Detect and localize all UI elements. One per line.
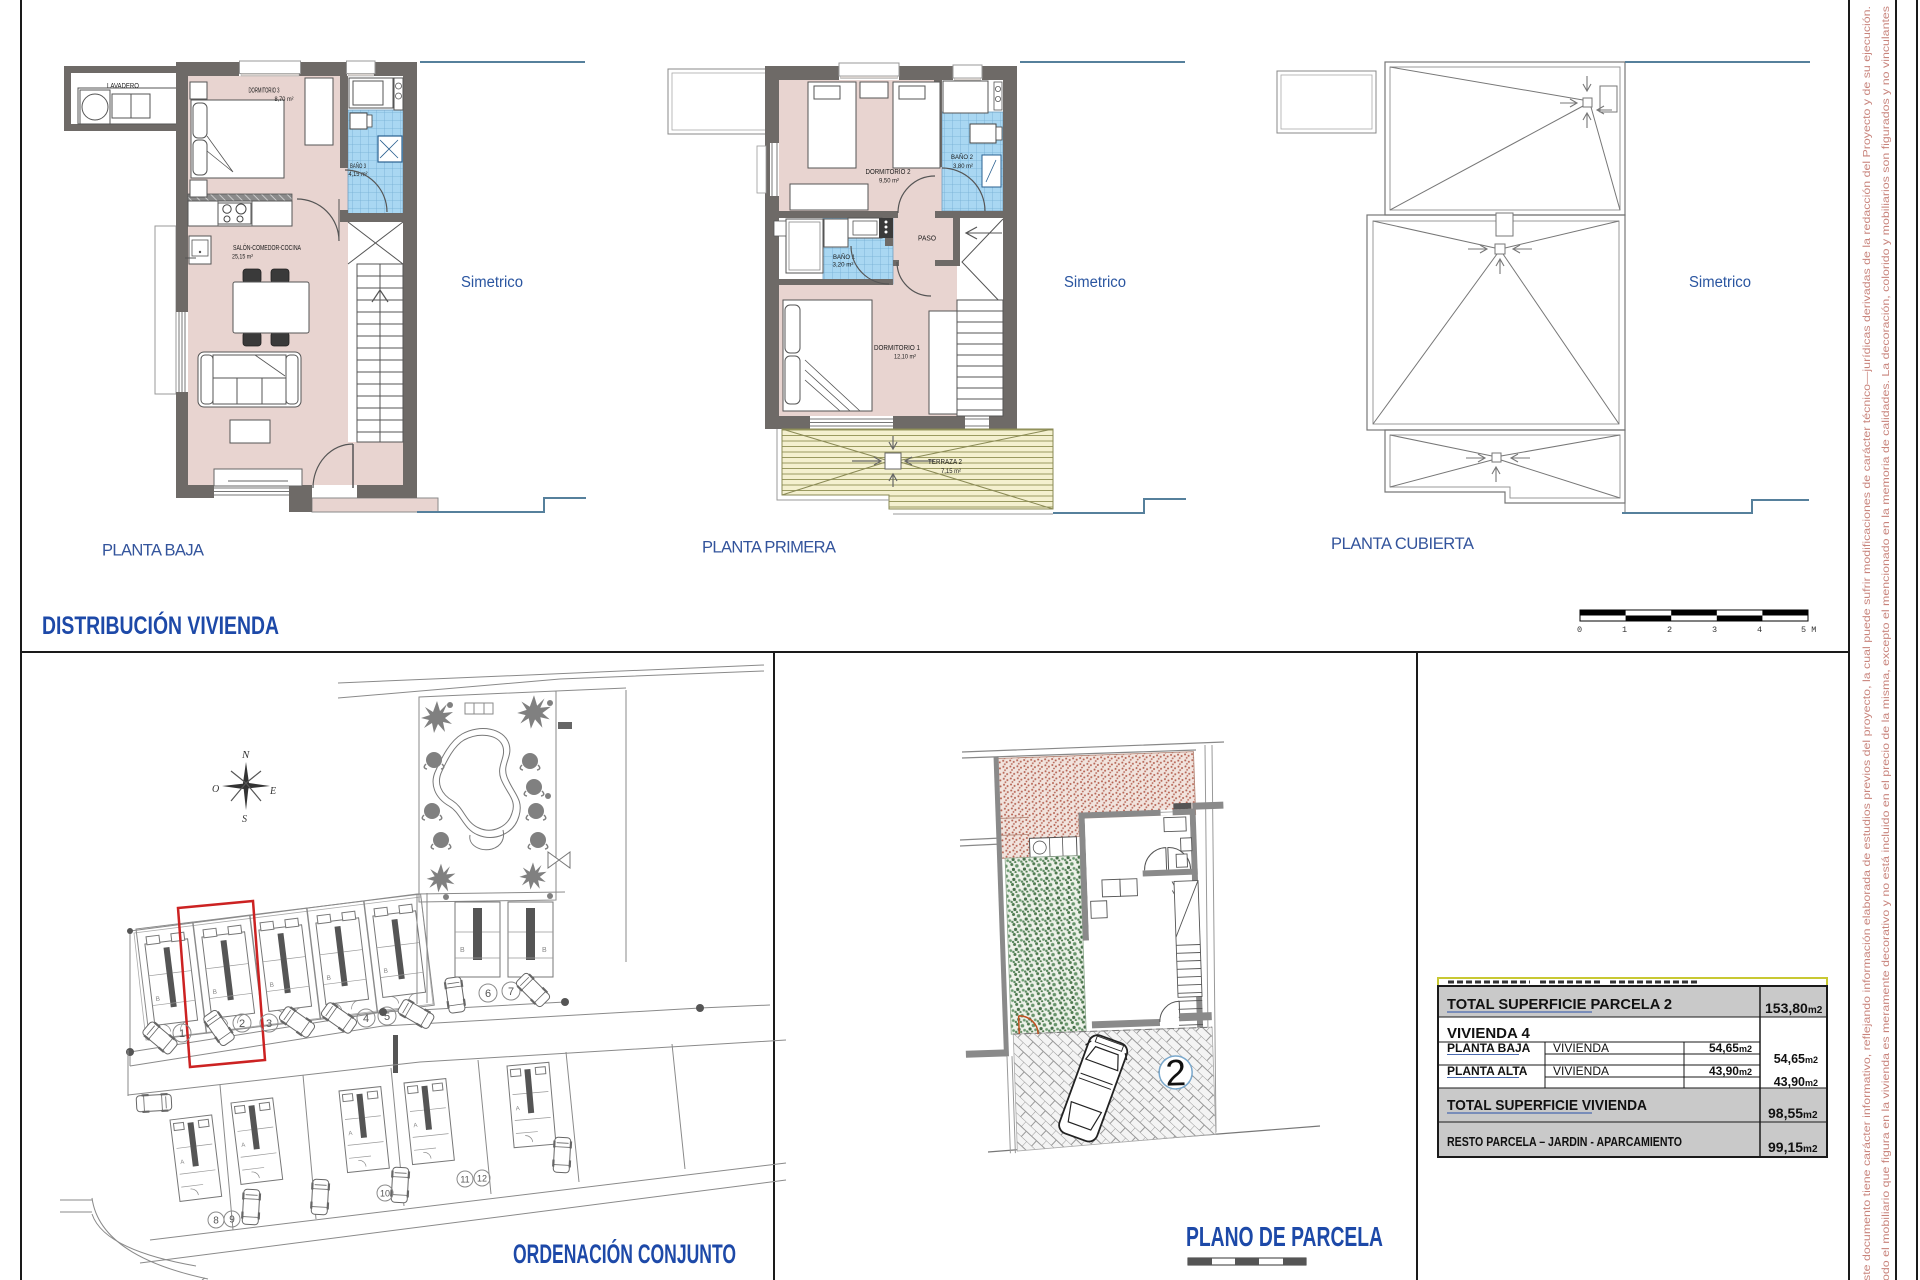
svg-text:9: 9 — [229, 1215, 235, 1226]
svg-text:BAÑO 2: BAÑO 2 — [951, 152, 973, 161]
svg-text:RESTO PARCELA – JARDIN - APARC: RESTO PARCELA – JARDIN - APARCAMIENTO — [1447, 1134, 1682, 1149]
svg-text:PLANO DE PARCELA: PLANO DE PARCELA — [1186, 1221, 1383, 1252]
svg-text:3: 3 — [266, 1018, 272, 1030]
svg-text:Simetrico: Simetrico — [1064, 274, 1126, 291]
svg-text:8,70 m²: 8,70 m² — [275, 96, 295, 103]
svg-text:7,15 m²: 7,15 m² — [941, 468, 962, 475]
svg-text:2: 2 — [1667, 625, 1672, 635]
svg-text:1: 1 — [179, 1028, 185, 1040]
svg-text:BAÑO 3: BAÑO 3 — [350, 161, 366, 170]
svg-text:VIVIENDA: VIVIENDA — [1553, 1041, 1609, 1055]
svg-text:VIVIENDA: VIVIENDA — [1553, 1064, 1609, 1078]
svg-text:DISTRIBUCIÓN VIVIENDA: DISTRIBUCIÓN VIVIENDA — [42, 610, 279, 640]
svg-text:3,80 m²: 3,80 m² — [953, 163, 974, 170]
svg-text:10: 10 — [380, 1189, 390, 1199]
svg-text:TOTAL SUPERFICIE PARCELA 2: TOTAL SUPERFICIE PARCELA 2 — [1447, 996, 1672, 1013]
svg-text:E: E — [269, 786, 276, 797]
svg-text:N: N — [241, 749, 250, 761]
svg-text:7: 7 — [508, 986, 514, 998]
svg-text:B: B — [542, 947, 547, 954]
svg-text:ORDENACIÓN CONJUNTO: ORDENACIÓN CONJUNTO — [513, 1238, 736, 1269]
svg-text:25,15 m²: 25,15 m² — [232, 254, 254, 261]
svg-text:S: S — [242, 814, 247, 825]
svg-text:SALÓN-COMEDOR-COCINA: SALÓN-COMEDOR-COCINA — [233, 243, 301, 252]
svg-text:43,90m2: 43,90m2 — [1709, 1064, 1752, 1078]
svg-text:54,65m2: 54,65m2 — [1774, 1052, 1818, 1066]
svg-text:Simetrico: Simetrico — [461, 274, 523, 291]
svg-text:TERRAZA 2: TERRAZA 2 — [928, 459, 962, 466]
svg-text:B: B — [460, 947, 465, 954]
svg-text:54,65m2: 54,65m2 — [1709, 1041, 1752, 1055]
svg-text:PLANTA PRIMERA: PLANTA PRIMERA — [702, 539, 836, 557]
svg-text:LAVADERO: LAVADERO — [107, 83, 139, 90]
svg-text:11: 11 — [460, 1175, 469, 1185]
svg-text:3: 3 — [1712, 625, 1717, 635]
svg-text:4: 4 — [1757, 625, 1762, 635]
svg-text:9,50 m²: 9,50 m² — [879, 178, 900, 185]
svg-text:2: 2 — [1165, 1052, 1187, 1094]
svg-text:PLANTA BAJA: PLANTA BAJA — [1447, 1041, 1531, 1055]
svg-text:Simetrico: Simetrico — [1689, 274, 1751, 291]
svg-text:PASO: PASO — [918, 236, 937, 243]
svg-text:VIVIENDA 4: VIVIENDA 4 — [1447, 1025, 1530, 1042]
svg-text:12,10 m²: 12,10 m² — [894, 354, 917, 361]
svg-text:1: 1 — [1622, 625, 1627, 635]
svg-text:PLANTA CUBIERTA: PLANTA CUBIERTA — [1331, 535, 1474, 553]
svg-text:12: 12 — [477, 1174, 487, 1184]
svg-text:TOTAL SUPERFICIE VIVIENDA: TOTAL SUPERFICIE VIVIENDA — [1447, 1097, 1647, 1114]
svg-text:O: O — [212, 784, 219, 795]
svg-text:odo el mobiliario que figura e: odo el mobiliario que figura en la vivie… — [1880, 6, 1892, 1280]
svg-text:2: 2 — [239, 1018, 245, 1030]
svg-text:3,20 m²: 3,20 m² — [833, 262, 855, 269]
svg-text:DORMITORIO 1: DORMITORIO 1 — [874, 345, 920, 352]
svg-text:PLANTA BAJA: PLANTA BAJA — [102, 542, 204, 560]
svg-text:8: 8 — [213, 1216, 219, 1227]
svg-text:0: 0 — [1577, 625, 1582, 635]
svg-text:43,90m2: 43,90m2 — [1774, 1075, 1818, 1089]
svg-text:6: 6 — [485, 988, 491, 1000]
svg-text:ste documento tiene carácter i: ste documento tiene carácter informativo… — [1861, 6, 1873, 1280]
svg-text:PLANTA ALTA: PLANTA ALTA — [1447, 1064, 1528, 1078]
svg-text:DORMITORIO 3: DORMITORIO 3 — [249, 88, 280, 95]
svg-text:4: 4 — [363, 1013, 369, 1025]
svg-text:DORMITORIO 2: DORMITORIO 2 — [866, 169, 911, 176]
svg-text:5 M: 5 M — [1801, 625, 1816, 635]
